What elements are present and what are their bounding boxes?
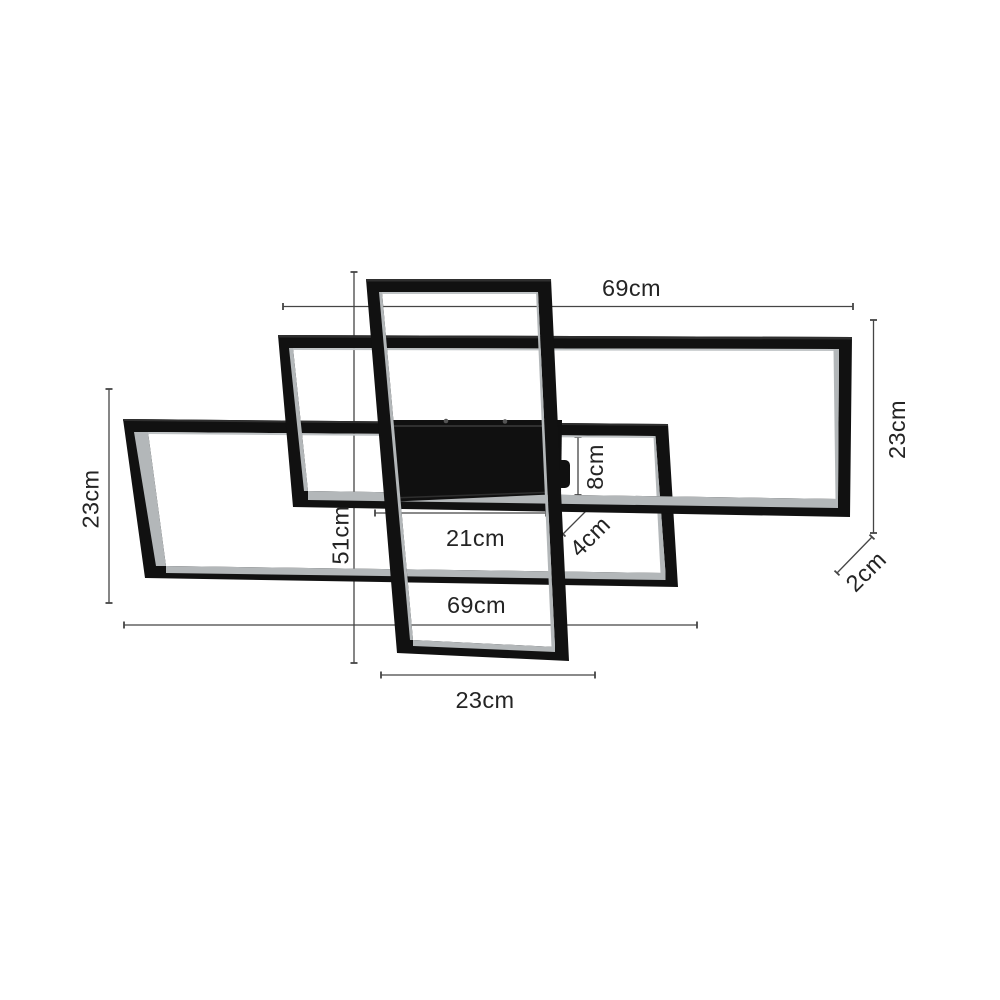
svg-text:69cm: 69cm [602, 275, 661, 301]
svg-text:23cm: 23cm [884, 400, 910, 459]
svg-text:23cm: 23cm [78, 469, 104, 528]
svg-text:69cm: 69cm [447, 592, 506, 618]
svg-text:23cm: 23cm [455, 687, 514, 713]
svg-text:51cm: 51cm [328, 505, 354, 564]
svg-text:8cm: 8cm [582, 444, 608, 490]
svg-text:21cm: 21cm [446, 525, 505, 551]
